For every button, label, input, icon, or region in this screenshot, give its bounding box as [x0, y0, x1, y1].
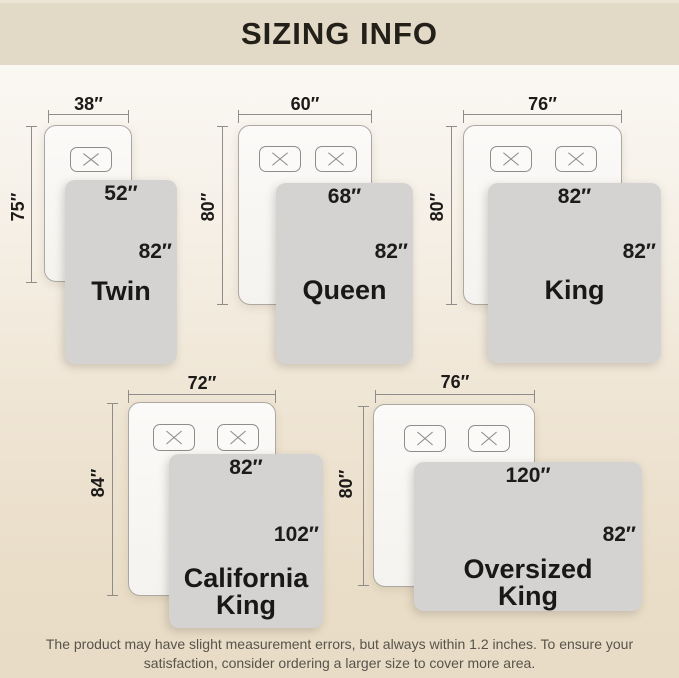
- disclaimer-text: The product may have slight measurement …: [0, 635, 679, 673]
- dim-tick: [534, 390, 535, 403]
- pillow: [217, 424, 259, 451]
- dim-tick: [446, 304, 457, 305]
- dim-tick: [26, 282, 37, 283]
- dim-tick: [463, 110, 464, 123]
- pillow-x-icon: [154, 425, 194, 450]
- pillow-x-icon: [556, 147, 596, 171]
- oversized-king-name-label: Oversized King: [453, 556, 603, 610]
- queen-blanket: [276, 183, 413, 364]
- twin-bed-width-label: 38″: [48, 95, 129, 113]
- dim-tick: [446, 126, 457, 127]
- dim-tick: [238, 110, 239, 123]
- queen-bed-length-dim-line: [222, 126, 223, 305]
- california-king-bed-width-label: 72″: [128, 374, 276, 392]
- oversized-king-bed-width-dim-line: [375, 394, 535, 395]
- king-blanket-length-label: 82″: [488, 241, 656, 262]
- pillow: [70, 147, 112, 172]
- oversized-king-bed-length-dim-line: [363, 406, 364, 586]
- page-title: SIZING INFO: [241, 16, 438, 52]
- pillow-x-icon: [71, 148, 111, 171]
- california-king-bed-length-dim-line: [112, 403, 113, 596]
- twin-blanket-width-label: 52″: [65, 183, 177, 204]
- california-king-name-label: California King: [169, 565, 323, 619]
- oversized-king-bed-width-label: 76″: [375, 373, 535, 391]
- queen-blanket-width-label: 68″: [276, 186, 413, 207]
- king-bed-length-label: 80″: [428, 185, 448, 229]
- california-king-bed-length-label: 84″: [89, 461, 109, 505]
- twin-blanket-length-label: 82″: [65, 241, 172, 262]
- pillow-x-icon: [491, 147, 531, 171]
- dim-tick: [107, 403, 118, 404]
- dim-tick: [358, 406, 369, 407]
- dim-tick: [358, 585, 369, 586]
- queen-bed-width-dim-line: [238, 114, 372, 115]
- dim-tick: [375, 390, 376, 403]
- pillow: [153, 424, 195, 451]
- header-band: SIZING INFO: [0, 0, 679, 65]
- twin-name-label: Twin: [65, 278, 177, 305]
- dim-tick: [275, 390, 276, 403]
- king-bed-width-label: 76″: [463, 95, 622, 113]
- oversized-king-blanket-length-label: 82″: [414, 524, 636, 545]
- twin-bed-length-label: 75″: [9, 185, 29, 229]
- california-king-blanket-length-label: 102″: [169, 524, 319, 545]
- dim-tick: [371, 110, 372, 123]
- king-bed-length-dim-line: [451, 126, 452, 305]
- queen-name-label: Queen: [276, 277, 413, 304]
- pillow: [468, 425, 510, 452]
- dim-tick: [621, 110, 622, 123]
- california-king-blanket-width-label: 82″: [169, 457, 323, 478]
- oversized-king-blanket-width-label: 120″: [414, 465, 642, 486]
- king-blanket-width-label: 82″: [488, 186, 661, 207]
- dim-tick: [26, 126, 37, 127]
- dim-tick: [48, 110, 49, 123]
- king-name-label: King: [488, 277, 661, 304]
- oversized-king-bed-length-label: 80″: [337, 462, 357, 506]
- pillow: [555, 146, 597, 172]
- dim-tick: [128, 390, 129, 403]
- dim-tick: [107, 595, 118, 596]
- twin-bed-width-dim-line: [48, 114, 129, 115]
- queen-bed-width-label: 60″: [238, 95, 372, 113]
- disclaimer-line-1: The product may have slight measurement …: [0, 635, 679, 654]
- sizing-info-infographic: SIZING INFO 38″ 75″ 52″ 82″ Twin 60″ 80″: [0, 0, 679, 678]
- dim-tick: [217, 126, 228, 127]
- king-blanket: [488, 183, 661, 363]
- dim-tick: [217, 304, 228, 305]
- twin-blanket: [65, 180, 177, 364]
- queen-bed-length-label: 80″: [199, 185, 219, 229]
- dim-tick: [128, 110, 129, 123]
- pillow-x-icon: [260, 147, 300, 171]
- pillow: [490, 146, 532, 172]
- pillow-x-icon: [469, 426, 509, 451]
- california-king-bed-width-dim-line: [128, 394, 276, 395]
- disclaimer-line-2: satisfaction, consider ordering a larger…: [0, 654, 679, 673]
- pillow: [404, 425, 446, 452]
- pillow-x-icon: [218, 425, 258, 450]
- twin-bed-length-dim-line: [31, 126, 32, 283]
- pillow: [315, 146, 357, 172]
- king-bed-width-dim-line: [463, 114, 622, 115]
- pillow: [259, 146, 301, 172]
- pillow-x-icon: [405, 426, 445, 451]
- queen-blanket-length-label: 82″: [276, 241, 408, 262]
- pillow-x-icon: [316, 147, 356, 171]
